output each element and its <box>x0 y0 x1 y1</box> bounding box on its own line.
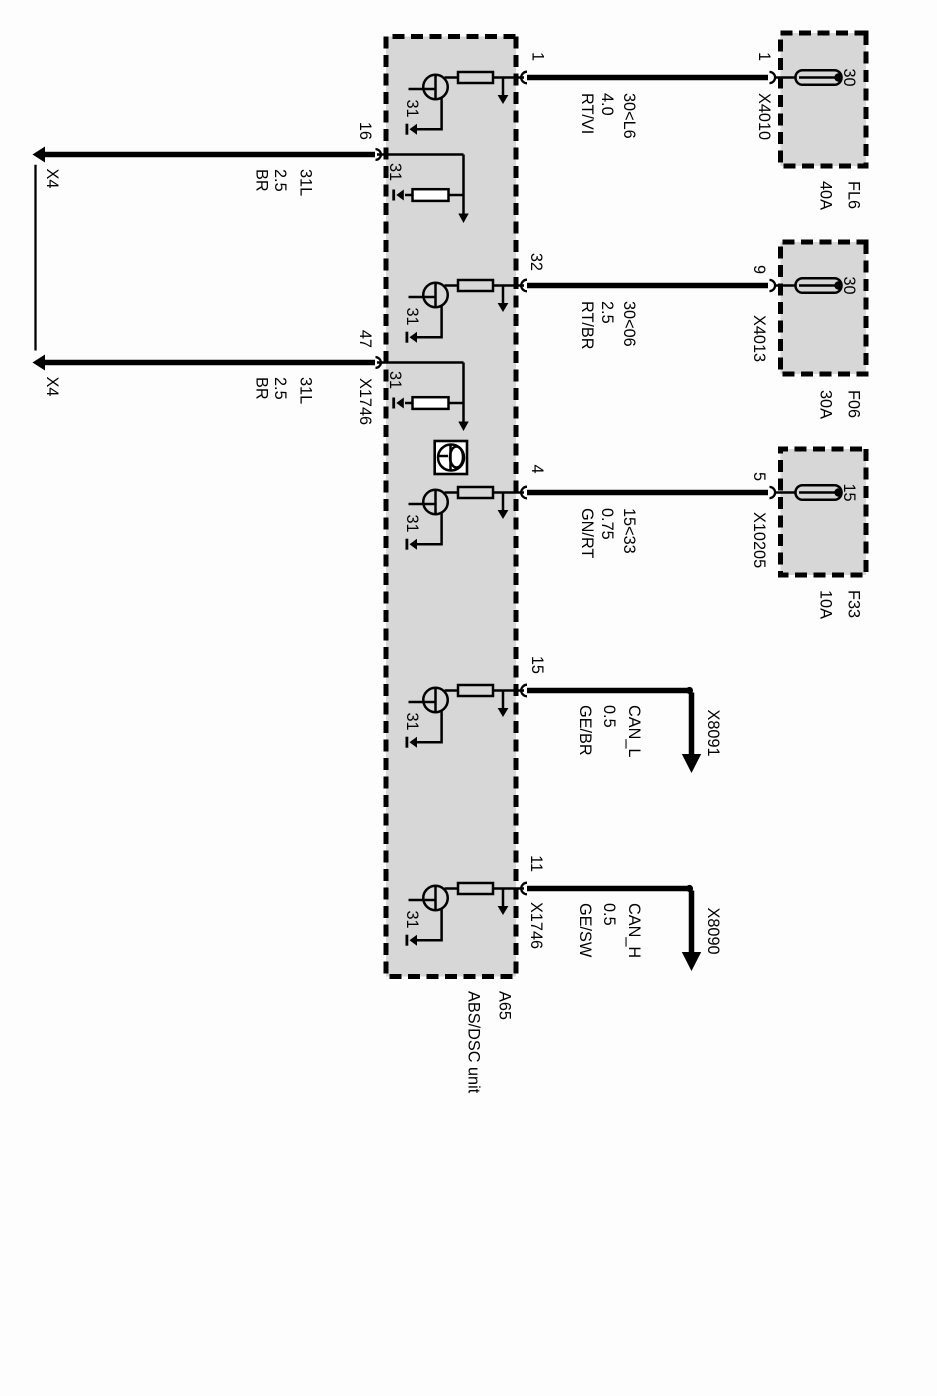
svg-text:0.75: 0.75 <box>598 508 616 540</box>
svg-text:2.5: 2.5 <box>271 169 289 192</box>
svg-text:31: 31 <box>403 308 421 326</box>
svg-text:GN/RT: GN/RT <box>578 508 596 558</box>
svg-text:30A: 30A <box>817 390 835 419</box>
svg-text:2.5: 2.5 <box>271 377 289 400</box>
svg-text:31: 31 <box>386 371 404 389</box>
svg-text:X8091: X8091 <box>704 710 722 757</box>
svg-text:ABS/DSC unit: ABS/DSC unit <box>465 991 483 1094</box>
svg-text:31L: 31L <box>297 377 315 404</box>
svg-text:1: 1 <box>755 52 773 61</box>
svg-text:47: 47 <box>356 330 374 348</box>
svg-text:RT/BR: RT/BR <box>578 301 596 350</box>
svg-text:0.5: 0.5 <box>600 903 618 926</box>
svg-text:X10205: X10205 <box>750 512 768 568</box>
svg-text:2.5: 2.5 <box>598 301 616 324</box>
svg-text:GE/BR: GE/BR <box>576 705 594 756</box>
svg-text:1: 1 <box>529 52 547 61</box>
svg-text:FL6: FL6 <box>845 181 863 209</box>
svg-text:15: 15 <box>840 483 858 501</box>
svg-text:X8090: X8090 <box>704 908 722 955</box>
svg-text:BR: BR <box>253 169 271 192</box>
svg-text:X1746: X1746 <box>527 902 545 949</box>
svg-text:31: 31 <box>403 515 421 533</box>
svg-text:4: 4 <box>528 464 546 473</box>
svg-text:32: 32 <box>527 253 545 271</box>
svg-text:CAN_H: CAN_H <box>625 903 643 958</box>
svg-text:30: 30 <box>840 68 858 86</box>
svg-text:31: 31 <box>403 911 421 929</box>
svg-text:RT/VI: RT/VI <box>578 93 596 134</box>
svg-text:16: 16 <box>356 122 374 140</box>
svg-text:CAN_L: CAN_L <box>625 705 643 758</box>
svg-text:11: 11 <box>527 855 545 872</box>
svg-text:30: 30 <box>840 276 858 294</box>
svg-text:X4010: X4010 <box>755 93 773 140</box>
svg-text:10A: 10A <box>817 590 835 619</box>
svg-text:GE/SW: GE/SW <box>576 903 594 958</box>
svg-text:40A: 40A <box>817 181 835 210</box>
svg-text:4.0: 4.0 <box>598 93 616 116</box>
svg-text:15: 15 <box>528 656 546 674</box>
svg-text:9: 9 <box>750 265 768 274</box>
svg-text:31: 31 <box>403 713 421 731</box>
svg-text:15<33: 15<33 <box>620 508 638 554</box>
svg-text:31L: 31L <box>297 169 315 196</box>
svg-text:X4: X4 <box>43 169 61 189</box>
svg-text:BR: BR <box>253 377 271 400</box>
svg-text:30<06: 30<06 <box>620 301 638 347</box>
svg-text:F33: F33 <box>845 590 863 618</box>
svg-text:X4: X4 <box>43 377 61 397</box>
svg-text:0.5: 0.5 <box>600 705 618 728</box>
svg-text:A65: A65 <box>496 991 514 1020</box>
svg-text:F06: F06 <box>845 390 863 418</box>
svg-text:31: 31 <box>403 100 421 118</box>
svg-text:5: 5 <box>750 472 768 481</box>
svg-text:30<L6: 30<L6 <box>620 93 638 139</box>
svg-text:31: 31 <box>386 163 404 181</box>
svg-text:X4013: X4013 <box>750 315 768 362</box>
svg-text:X1746: X1746 <box>356 378 374 425</box>
